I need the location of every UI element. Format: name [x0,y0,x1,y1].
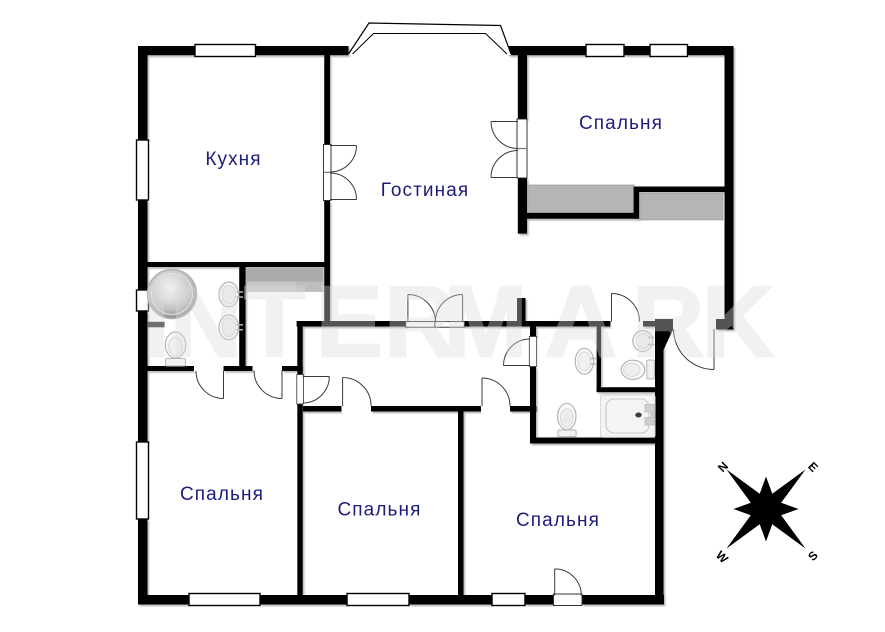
svg-text:Спальня: Спальня [579,113,663,134]
svg-text:Спальня: Спальня [180,484,264,505]
svg-text:Спальня: Спальня [337,500,421,521]
svg-text:Гостиная: Гостиная [381,180,470,201]
svg-text:Спальня: Спальня [516,510,600,531]
svg-text:Кухня: Кухня [205,149,261,170]
svg-text:INTERMARK: INTERMARK [142,266,774,378]
